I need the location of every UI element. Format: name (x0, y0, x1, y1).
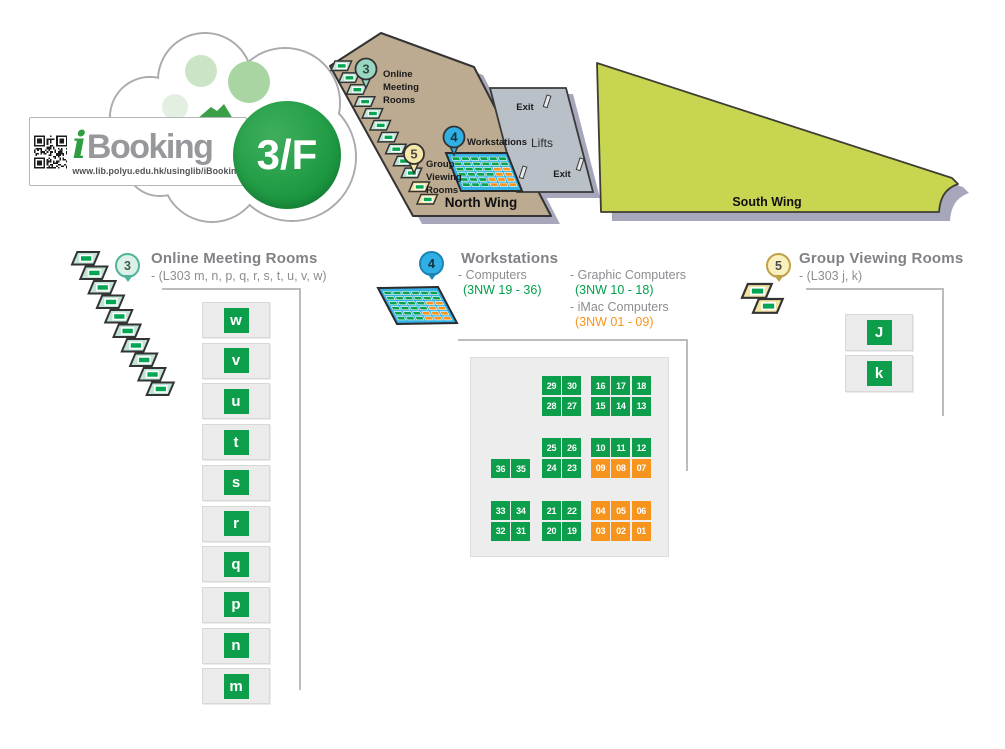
room-card-r[interactable]: r (202, 506, 270, 542)
room-card-q[interactable]: q (202, 546, 270, 582)
legend-imac-label: - iMac Computers (570, 300, 669, 314)
wing-shadows (339, 41, 969, 224)
brand-name: iBooking (72, 127, 242, 164)
ibooking-url: www.lib.polyu.edu.hk/usinglib/iBooking (72, 166, 242, 176)
map-label-lifts: Lifts (531, 136, 553, 150)
section-online-meeting-marker: 3 (115, 253, 140, 278)
room-card-t[interactable]: t (202, 424, 270, 460)
group-viewing-cards: Jk (845, 314, 915, 399)
map-label-workstations: Workstations (467, 137, 527, 148)
workstations-title: Workstations (461, 250, 558, 267)
room-card-J[interactable]: J (845, 314, 913, 351)
workstation-seat-12[interactable]: 12 (632, 438, 651, 457)
room-card-s[interactable]: s (202, 465, 270, 501)
room-card-k[interactable]: k (845, 355, 913, 392)
workstations-bracket-v (686, 339, 688, 471)
legend-graphic-label: - Graphic Computers (570, 268, 686, 282)
floor-badge: 3/F (233, 101, 341, 209)
lifts-shape (490, 88, 593, 192)
map-label-exit-top: Exit (516, 102, 534, 113)
cloud-bubble-light (185, 55, 217, 87)
online-meeting-subtitle: - (L303 m, n, p, q, r, s, t, u, v, w) (151, 269, 327, 283)
workstation-seat-19[interactable]: 19 (562, 522, 581, 541)
legend-graphic-range: (3NW 10 - 18) (575, 283, 654, 297)
room-card-p[interactable]: p (202, 587, 270, 623)
workstation-seat-17[interactable]: 17 (611, 376, 630, 395)
workstation-seat-25[interactable]: 25 (542, 438, 561, 457)
workstation-seat-23[interactable]: 23 (562, 459, 581, 478)
workstation-seat-33[interactable]: 33 (491, 501, 510, 520)
ibooking-banner: iBooking www.lib.polyu.edu.hk/usinglib/i… (29, 117, 247, 186)
map-marker-group-viewing: 5 (404, 144, 424, 173)
brand-i: i (72, 123, 85, 167)
workstation-seat-05[interactable]: 05 (611, 501, 630, 520)
workstation-seat-31[interactable]: 31 (511, 522, 530, 541)
group-viewing-bracket-h (806, 288, 944, 290)
group-viewing-room-icons (742, 284, 783, 313)
room-key-label: s (224, 470, 249, 495)
room-key-label: J (867, 320, 892, 345)
room-key-label: p (224, 592, 249, 617)
svg-text:4: 4 (450, 130, 458, 145)
online-meeting-cards: wvutsrqpnm (202, 302, 272, 712)
workstation-panel: 2930282716171815141336352526242310111209… (470, 357, 669, 557)
map-label-online-1: Online (383, 69, 413, 80)
workstation-seat-30[interactable]: 30 (562, 376, 581, 395)
workstations-bracket-h (458, 339, 688, 341)
workstation-seat-28[interactable]: 28 (542, 397, 561, 416)
section-workstations-marker: 4 (419, 251, 444, 276)
room-key-label: w (224, 308, 249, 333)
north-wing-shape (330, 33, 551, 216)
workstation-seat-35[interactable]: 35 (511, 459, 530, 478)
workstation-seat-02[interactable]: 02 (611, 522, 630, 541)
online-meeting-bracket-v (299, 288, 301, 690)
workstation-seat-06[interactable]: 06 (632, 501, 651, 520)
map-marker-workstations: 4 (444, 127, 465, 156)
room-card-n[interactable]: n (202, 628, 270, 664)
workstation-seat-11[interactable]: 11 (611, 438, 630, 457)
qr-code (34, 123, 67, 181)
room-card-v[interactable]: v (202, 343, 270, 379)
room-card-w[interactable]: w (202, 302, 270, 338)
group-viewing-title: Group Viewing Rooms (799, 250, 963, 267)
workstation-seat-27[interactable]: 27 (562, 397, 581, 416)
workstation-seat-10[interactable]: 10 (591, 438, 610, 457)
workstation-seat-01[interactable]: 01 (632, 522, 651, 541)
workstation-seat-13[interactable]: 13 (632, 397, 651, 416)
map-workstation-grid (446, 153, 522, 191)
legend-computers-range: (3NW 19 - 36) (463, 283, 542, 297)
room-key-label: q (224, 552, 249, 577)
map-label-online-2: Meeting (383, 82, 419, 93)
room-card-m[interactable]: m (202, 668, 270, 704)
workstation-seat-15[interactable]: 15 (591, 397, 610, 416)
room-key-label: r (224, 511, 249, 536)
svg-text:3: 3 (362, 62, 369, 77)
legend-computers-label: - Computers (458, 268, 527, 282)
map-label-online-3: Rooms (383, 95, 415, 106)
online-meeting-title: Online Meeting Rooms (151, 250, 318, 267)
workstation-seat-16[interactable]: 16 (591, 376, 610, 395)
group-viewing-bracket-v (942, 288, 944, 416)
workstation-seat-07[interactable]: 07 (632, 459, 651, 478)
workstation-seat-29[interactable]: 29 (542, 376, 561, 395)
workstation-seat-21[interactable]: 21 (542, 501, 561, 520)
workstations-icon (378, 287, 457, 324)
legend-imac-range: (3NW 01 - 09) (575, 315, 654, 329)
map-label-exit-bottom: Exit (553, 169, 571, 180)
south-wing-shape (597, 63, 958, 212)
room-key-label: v (224, 348, 249, 373)
ibooking-logo: iBooking www.lib.polyu.edu.hk/usinglib/i… (72, 127, 242, 176)
room-card-u[interactable]: u (202, 383, 270, 419)
workstation-seat-20[interactable]: 20 (542, 522, 561, 541)
map-label-north-wing: North Wing (445, 195, 518, 210)
room-key-label: m (224, 674, 249, 699)
room-key-label: u (224, 389, 249, 414)
map-label-group-1: Group (426, 159, 455, 170)
room-key-label: n (224, 633, 249, 658)
workstation-seat-18[interactable]: 18 (632, 376, 651, 395)
group-viewing-subtitle: - (L303 j, k) (799, 269, 862, 283)
room-key-label: t (224, 430, 249, 455)
map-label-group-3: Rooms (426, 185, 458, 196)
ibooking-floor-map-page: 3 5 4 Online Meeting Rooms Group Viewing… (0, 0, 1005, 749)
map-room-icons (331, 61, 438, 204)
workstation-seat-03[interactable]: 03 (591, 522, 610, 541)
online-meeting-bracket-h (162, 288, 301, 290)
map-label-south-wing: South Wing (732, 195, 801, 209)
section-group-viewing-marker: 5 (766, 253, 791, 278)
workstation-seat-24[interactable]: 24 (542, 459, 561, 478)
svg-text:5: 5 (410, 147, 417, 162)
workstation-seat-26[interactable]: 26 (562, 438, 581, 457)
map-marker-online-meeting: 3 (356, 59, 377, 89)
room-key-label: k (867, 361, 892, 386)
workstation-seat-08[interactable]: 08 (611, 459, 630, 478)
workstation-seat-09[interactable]: 09 (591, 459, 610, 478)
workstation-seat-36[interactable]: 36 (491, 459, 510, 478)
map-label-group-2: Viewing (426, 172, 462, 183)
workstation-seat-04[interactable]: 04 (591, 501, 610, 520)
workstation-seat-34[interactable]: 34 (511, 501, 530, 520)
workstation-seat-32[interactable]: 32 (491, 522, 510, 541)
workstation-seat-14[interactable]: 14 (611, 397, 630, 416)
workstation-seat-22[interactable]: 22 (562, 501, 581, 520)
cloud-bubble-medium (228, 61, 270, 103)
